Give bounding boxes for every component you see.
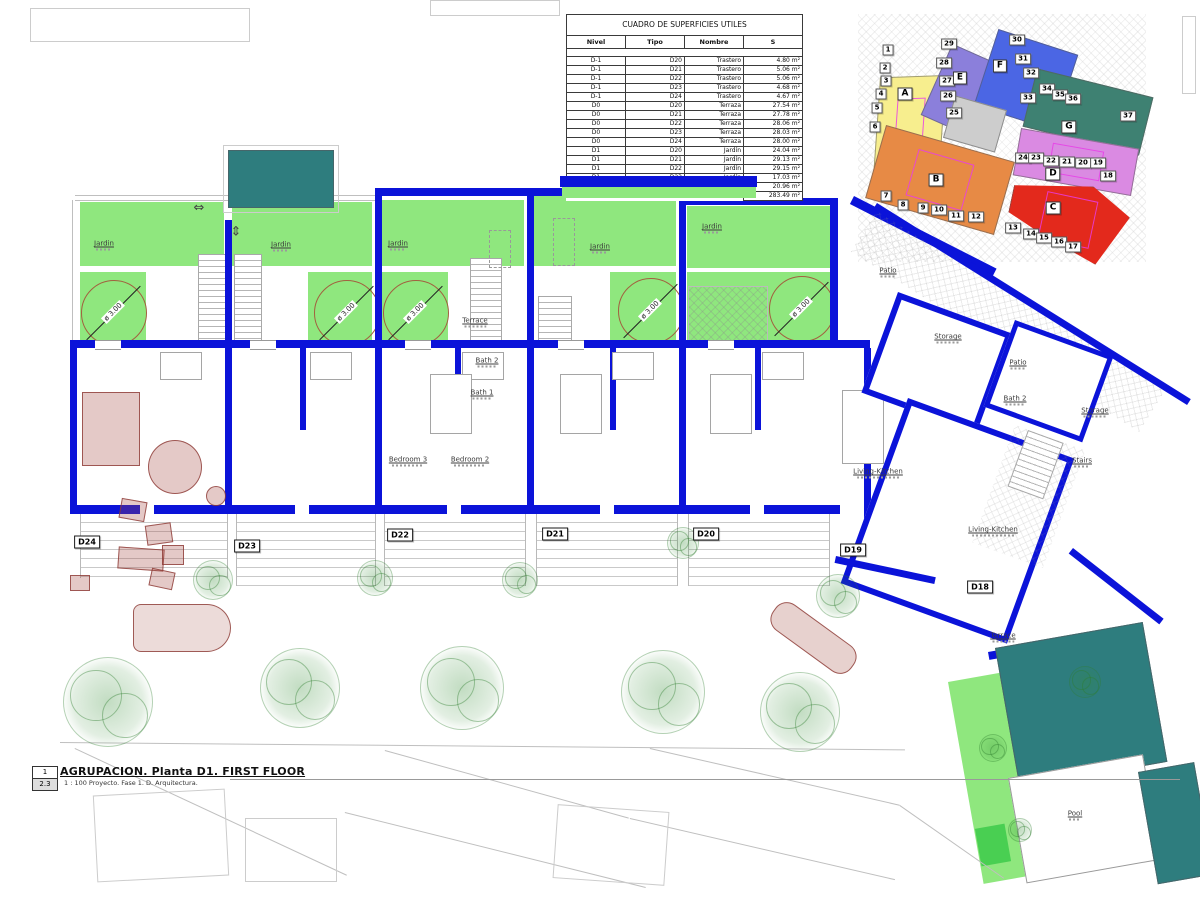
surface-table-row: D-1D23Trastero4.68 m²	[567, 84, 803, 93]
keyplan-unit-number: 10	[931, 205, 947, 216]
room-label: Jardin	[271, 241, 291, 252]
surface-table-cell: Terraza	[685, 120, 744, 129]
surface-table-cell: D-1	[567, 57, 626, 66]
room-area-text	[1005, 404, 1025, 406]
keyplan-unit-number: 25	[946, 108, 962, 119]
drawing-subtitle: 1 : 100 Proyecto. Fase 1. D. Arquitectur…	[64, 779, 198, 787]
room-label: Jardin	[388, 240, 408, 251]
keyplan-unit-number: 21	[1059, 157, 1075, 168]
plant-pot	[206, 486, 226, 506]
room-area-text	[857, 477, 899, 479]
stair-flight	[198, 254, 226, 342]
keyplan-unit-number: 13	[1005, 223, 1021, 234]
surface-table-cell: Terraza	[685, 111, 744, 120]
room-area-text	[464, 326, 486, 328]
keyplan-unit-number: 31	[1015, 54, 1031, 65]
keyplan-block-letter: E	[953, 72, 967, 85]
surface-table-cell: D0	[567, 120, 626, 129]
window-opening	[708, 340, 734, 350]
planter-bed	[133, 604, 231, 652]
room-area-text	[992, 641, 1014, 643]
surface-table-cell: D21	[626, 66, 685, 75]
keyplan-block-letter: B	[929, 174, 944, 187]
window-opening	[250, 340, 276, 350]
surface-table-row: D-1D20Trastero4.80 m²	[567, 57, 803, 66]
keyplan-unit-number: 33	[1020, 93, 1036, 104]
room-label: Bath 2	[476, 357, 499, 368]
surface-table-cell: D0	[567, 138, 626, 147]
room-label: Terrace	[990, 632, 1015, 643]
surface-table-row: D0D24Terraza28.00 m²	[567, 138, 803, 147]
room-area-text	[936, 342, 959, 344]
wall-segment	[70, 340, 77, 514]
sheet-edge-box	[30, 8, 250, 42]
lawn-patch	[975, 824, 1011, 867]
bed	[82, 392, 140, 466]
pool-water	[1138, 762, 1200, 884]
room-label: Storage	[1081, 407, 1108, 418]
surface-table-row: D-1D21Trastero5.06 m²	[567, 66, 803, 75]
keyplan-block-letter: D	[1045, 168, 1060, 181]
room-area-text	[704, 232, 721, 234]
keyplan-unit-number: 8	[898, 200, 909, 211]
room-label: Jardin	[702, 223, 722, 234]
unit-tag: D18	[967, 581, 993, 594]
surface-table-cell: D24	[626, 138, 685, 147]
surface-table-cell: D22	[626, 165, 685, 174]
surface-table-cell: Trastero	[685, 93, 744, 102]
neighbor-building	[553, 804, 670, 886]
closet	[160, 352, 202, 380]
surface-table-cell: D24	[626, 93, 685, 102]
room-label: Terrace	[462, 317, 487, 328]
surface-table-cell: Terraza	[685, 138, 744, 147]
tree	[621, 650, 705, 734]
surface-table-cell: D22	[626, 75, 685, 84]
room-area-text	[472, 398, 492, 400]
surface-table-cell: 4.67 m²	[744, 93, 803, 102]
bed-outline	[430, 374, 472, 434]
terrace-pergola	[688, 514, 830, 586]
window-opening	[405, 340, 431, 350]
surface-table-row: D0D20Terraza27.54 m²	[567, 102, 803, 111]
bed-outline	[560, 374, 602, 434]
door-opening	[750, 505, 764, 514]
wall-segment	[300, 348, 306, 430]
surface-table-cell: D1	[567, 165, 626, 174]
tree	[760, 672, 840, 752]
room-label: Bath 2	[1004, 395, 1027, 406]
surface-table-cell: D-1	[567, 66, 626, 75]
detail-number-box: 2.3	[32, 778, 58, 791]
tree	[979, 734, 1007, 762]
room-label: Bedroom 3	[389, 456, 427, 467]
surface-table-cell: D22	[626, 120, 685, 129]
surface-table-cell: Terraza	[685, 102, 744, 111]
room-area-text	[1074, 466, 1091, 468]
surface-table-cell: D21	[626, 111, 685, 120]
roof-hatch	[688, 286, 768, 342]
surface-table-row: D1D21Jardín29.13 m²	[567, 156, 803, 165]
surface-table-cell: D-1	[567, 84, 626, 93]
tree	[420, 646, 504, 730]
keyplan-unit-number: 17	[1065, 242, 1081, 253]
surface-table-cell: Trastero	[685, 75, 744, 84]
keyplan-unit-number: 36	[1065, 94, 1081, 105]
bed-outline	[710, 374, 752, 434]
boundary-line	[72, 200, 73, 340]
keyplan-unit-number: 28	[936, 58, 952, 69]
kitchen-counter	[842, 390, 884, 464]
wall-segment	[560, 176, 757, 187]
tree	[260, 648, 340, 728]
room-label: Pool	[1068, 810, 1082, 821]
closet	[612, 352, 654, 380]
surface-table-cell: 4.68 m²	[744, 84, 803, 93]
surface-table-cell: D21	[626, 156, 685, 165]
surface-table-cell: 24.04 m²	[744, 147, 803, 156]
surface-table-cell: D20	[626, 147, 685, 156]
surface-table-cell: D20	[626, 102, 685, 111]
surface-table-cell: Trastero	[685, 66, 744, 75]
room-area-text	[592, 252, 609, 254]
surface-table-cell: Jardín	[685, 165, 744, 174]
door-opening	[295, 505, 309, 514]
unit-tag: D24	[74, 536, 100, 549]
sheet-edge-box	[430, 0, 560, 16]
surface-table-cell: D0	[567, 129, 626, 138]
wall-segment	[70, 340, 870, 348]
site-line	[630, 818, 895, 880]
room-label: Patio	[879, 267, 896, 278]
site-line	[650, 748, 900, 806]
room-label: Living-Kitchen	[968, 526, 1018, 537]
room-area-text	[392, 465, 425, 467]
surface-table-cell: 29.13 m²	[744, 156, 803, 165]
surface-table-cell: 29.15 m²	[744, 165, 803, 174]
surface-table-cell: D23	[626, 129, 685, 138]
keyplan-unit-number: 15	[1036, 233, 1052, 244]
stair-direction-arrow-icon: ⇔	[194, 201, 205, 216]
tree	[1008, 818, 1032, 842]
room-area-text	[273, 250, 290, 252]
surface-table-cell: D0	[567, 111, 626, 120]
surface-table-row: D0D22Terraza28.06 m²	[567, 120, 803, 129]
keyplan-unit-number: 1	[883, 45, 894, 56]
wall-segment	[527, 190, 534, 513]
room-area-text	[477, 366, 497, 368]
elevator-shaft	[489, 230, 511, 268]
wall-segment	[679, 190, 686, 513]
room-label: Patio	[1009, 359, 1026, 370]
surface-table-cell: 5.06 m²	[744, 75, 803, 84]
garden-area	[687, 206, 830, 268]
table	[162, 545, 184, 565]
tree	[1069, 666, 1101, 698]
unit-tag: D21	[542, 528, 568, 541]
unit-tag: D20	[693, 528, 719, 541]
window-opening	[558, 340, 584, 350]
keyplan-unit-number: 37	[1120, 111, 1136, 122]
room-label: Stairs	[1072, 457, 1092, 468]
armchair	[118, 498, 147, 522]
surface-table-header: Nivel Tipo Nombre S	[567, 36, 803, 49]
keyplan-unit-number: 11	[948, 211, 964, 222]
wall-segment	[1069, 548, 1164, 624]
surface-table-cell: Trastero	[685, 84, 744, 93]
keyplan-block-letter: G	[1061, 121, 1076, 134]
unit-tag: D23	[234, 540, 260, 553]
keyplan-unit-number: 23	[1028, 153, 1044, 164]
surface-table-cell: D20	[626, 57, 685, 66]
keyplan-unit-number: 5	[872, 103, 883, 114]
garden-strip	[562, 187, 756, 198]
surface-table-cell: 5.06 m²	[744, 66, 803, 75]
keyplan-unit-number: 6	[870, 122, 881, 133]
wall-segment	[225, 220, 232, 513]
surface-table-cell: D-1	[567, 93, 626, 102]
keyplan-block-letter: F	[993, 60, 1007, 73]
surface-table-row: D-1D22Trastero5.06 m²	[567, 75, 803, 84]
room-area-text	[972, 535, 1014, 537]
terrace-pergola	[536, 514, 678, 586]
unit-tag: D19	[840, 544, 866, 557]
surface-table-cell: 27.54 m²	[744, 102, 803, 111]
surface-table-cell: Trastero	[685, 57, 744, 66]
room-label: Living-Kitchen	[853, 468, 903, 479]
keyplan-unit-number: 29	[941, 39, 957, 50]
stair-flight	[538, 296, 572, 344]
window-opening	[95, 340, 121, 350]
unit-tag: D22	[387, 529, 413, 542]
surface-table-cell: Jardín	[685, 156, 744, 165]
chair	[70, 575, 90, 591]
door-opening	[447, 505, 461, 514]
tree	[193, 560, 233, 600]
wall-segment	[375, 190, 382, 513]
room-area-text	[1083, 416, 1106, 418]
surface-table-cell: D0	[567, 102, 626, 111]
stair-flight	[234, 254, 262, 342]
room-label: Storage	[934, 333, 961, 344]
keyplan-unit-number: 3	[881, 76, 892, 87]
surface-table-cell: Terraza	[685, 129, 744, 138]
drawing-sheet: 1234562928272625303132333435363724232221…	[0, 0, 1200, 902]
keyplan-unit-number: 2	[880, 63, 891, 74]
keyplan-block-letter: C	[1046, 202, 1061, 215]
armchair	[145, 522, 174, 545]
surface-table-cell: 27.78 m²	[744, 111, 803, 120]
sheet-edge-box	[1182, 16, 1196, 94]
surface-table-cell: D1	[567, 147, 626, 156]
surface-table-cell: 28.06 m²	[744, 120, 803, 129]
room-label: Jardin	[94, 240, 114, 251]
surface-table-cell: D1	[567, 156, 626, 165]
water-deposit-frame	[223, 145, 339, 213]
surface-table-row: D0D21Terraza27.78 m²	[567, 111, 803, 120]
surface-table: CUADRO DE SUPERFICIES UTILES Nivel Tipo …	[566, 14, 803, 201]
tree	[816, 574, 860, 618]
room-area-text	[1011, 368, 1026, 370]
keyplan-unit-number: 18	[1100, 171, 1116, 182]
keyplan-unit-number: 19	[1090, 158, 1106, 169]
room-area-text	[881, 276, 896, 278]
drawing-title: AGRUPACION. Planta D1. FIRST FLOOR	[60, 765, 305, 778]
tree	[502, 562, 538, 598]
sofa	[117, 546, 164, 571]
surface-table-cell: D23	[626, 84, 685, 93]
keyplan-unit-number: 22	[1043, 156, 1059, 167]
elevator-shaft	[553, 218, 575, 266]
room-label: Jardin	[590, 243, 610, 254]
keyplan-unit-number: 26	[940, 91, 956, 102]
room-label: Bath 1	[471, 389, 494, 400]
keyplan-unit-number: 7	[881, 191, 892, 202]
surface-table-cell: 28.03 m²	[744, 129, 803, 138]
keyplan-unit-number: 12	[968, 212, 984, 223]
tree	[357, 560, 393, 596]
keyplan-unit-number: 30	[1009, 35, 1025, 46]
tree	[63, 657, 153, 747]
keyplan-unit-number: 9	[918, 203, 929, 214]
surface-table-cell: 28.00 m²	[744, 138, 803, 147]
neighbor-building	[93, 789, 229, 883]
keyplan-unit-number: 4	[876, 89, 887, 100]
surface-table-row: D1D20Jardín24.04 m²	[567, 147, 803, 156]
stair-flight	[470, 258, 502, 344]
title-rule	[230, 779, 1180, 780]
wall-segment	[830, 198, 838, 348]
wall-segment	[755, 348, 761, 430]
closet	[762, 352, 804, 380]
surface-table-cell: Jardín	[685, 147, 744, 156]
surface-table-title: CUADRO DE SUPERFICIES UTILES	[567, 15, 803, 36]
room-area-text	[390, 249, 407, 251]
surface-table-row: D-1D24Trastero4.67 m²	[567, 93, 803, 102]
stair-direction-arrow-icon: ⇕	[231, 225, 242, 240]
room-area-text	[96, 249, 113, 251]
keyplan-unit-number: 20	[1075, 158, 1091, 169]
rug	[148, 440, 202, 494]
keyplan-block-letter: A	[898, 88, 913, 101]
keyplan-unit-number: 32	[1023, 68, 1039, 79]
room-area-text	[1069, 819, 1081, 821]
neighbor-building	[245, 818, 337, 882]
door-opening	[600, 505, 614, 514]
surface-table-row: D0D23Terraza28.03 m²	[567, 129, 803, 138]
surface-table-row: D1D22Jardín29.15 m²	[567, 165, 803, 174]
room-area-text	[454, 465, 487, 467]
surface-table-cell: 4.80 m²	[744, 57, 803, 66]
room-label: Bedroom 2	[451, 456, 489, 467]
surface-table-cell: D-1	[567, 75, 626, 84]
closet	[310, 352, 352, 380]
chair	[148, 568, 175, 591]
